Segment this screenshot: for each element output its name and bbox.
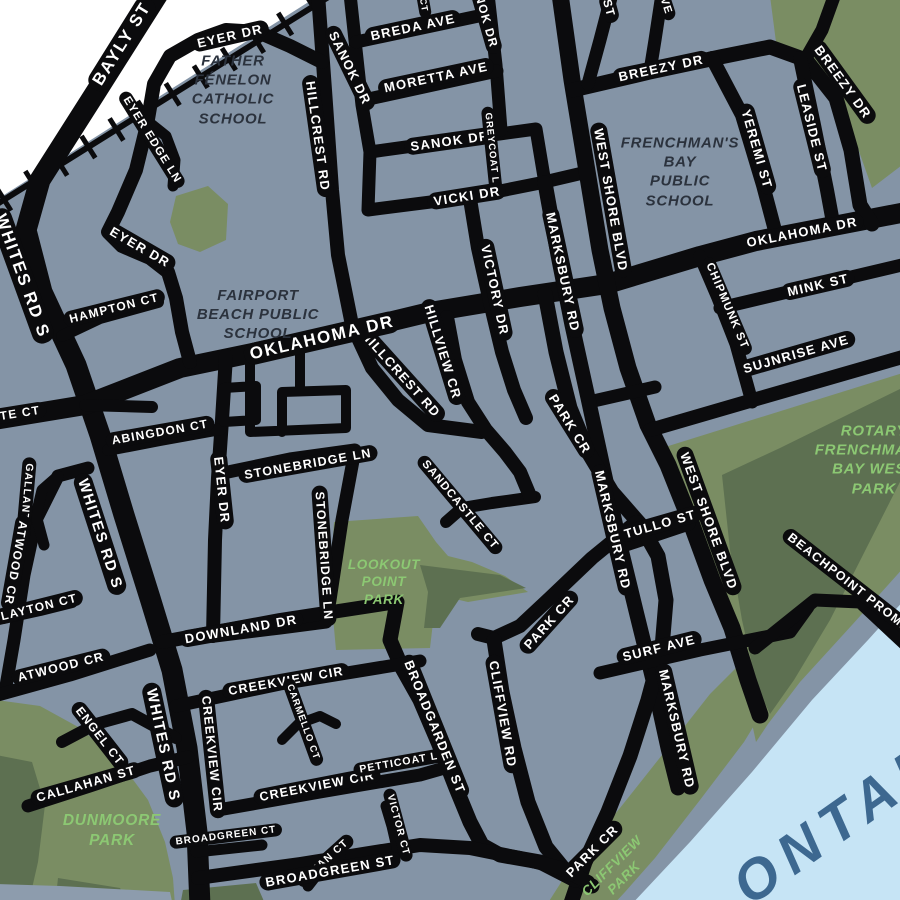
area-label-dunmoore: DUNMOORE PARK (63, 811, 161, 851)
area-label-fairport: FAIRPORT BEACH PUBLIC SCHOOL (197, 286, 319, 344)
area-label-frenchman-s: FRENCHMAN'S BAY PUBLIC SCHOOL (621, 134, 739, 211)
area-label-father: FATHER FÉNELON CATHOLIC SCHOOL (192, 52, 274, 129)
map-canvas: BAYLY STWHITES RD SWHITES RD SWHITES RD … (0, 0, 900, 900)
area-label-lookout: LOOKOUT POINT PARK (348, 556, 420, 608)
area-label-rotary: ROTARY FRENCHMAN'S BAY WEST PARK (815, 422, 900, 499)
